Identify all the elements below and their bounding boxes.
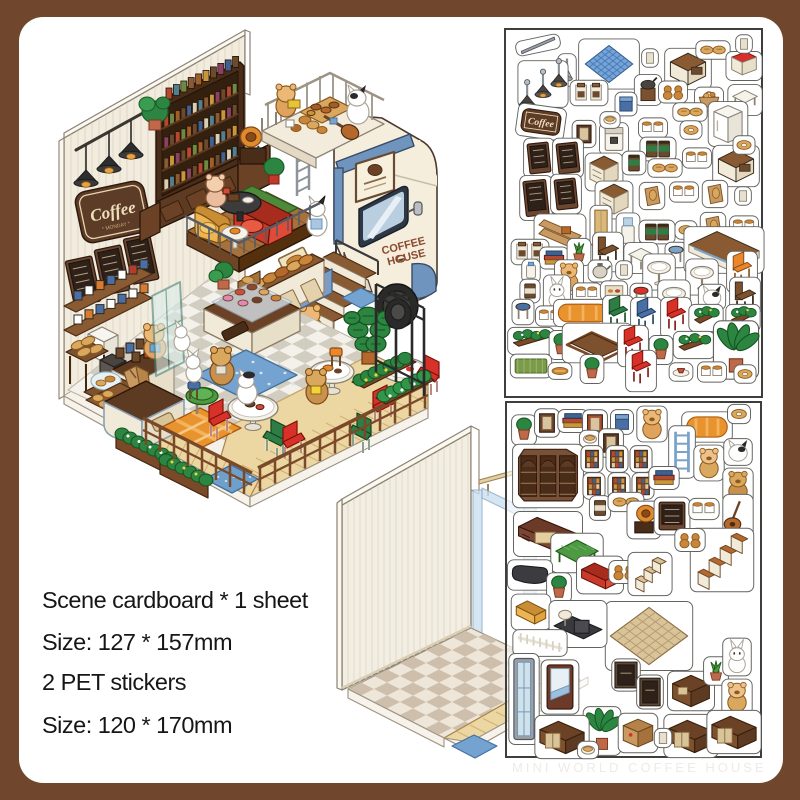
svg-text:Size: 127 * 157mm: Size: 127 * 157mm: [42, 629, 232, 655]
svg-text:MINI WORLD COFFEE HOUSE: MINI WORLD COFFEE HOUSE: [512, 760, 767, 775]
svg-text:Scene cardboard * 1 sheet: Scene cardboard * 1 sheet: [42, 587, 309, 613]
svg-text:Size: 120 * 170mm: Size: 120 * 170mm: [42, 712, 232, 738]
svg-text:2 PET stickers: 2 PET stickers: [42, 669, 186, 695]
